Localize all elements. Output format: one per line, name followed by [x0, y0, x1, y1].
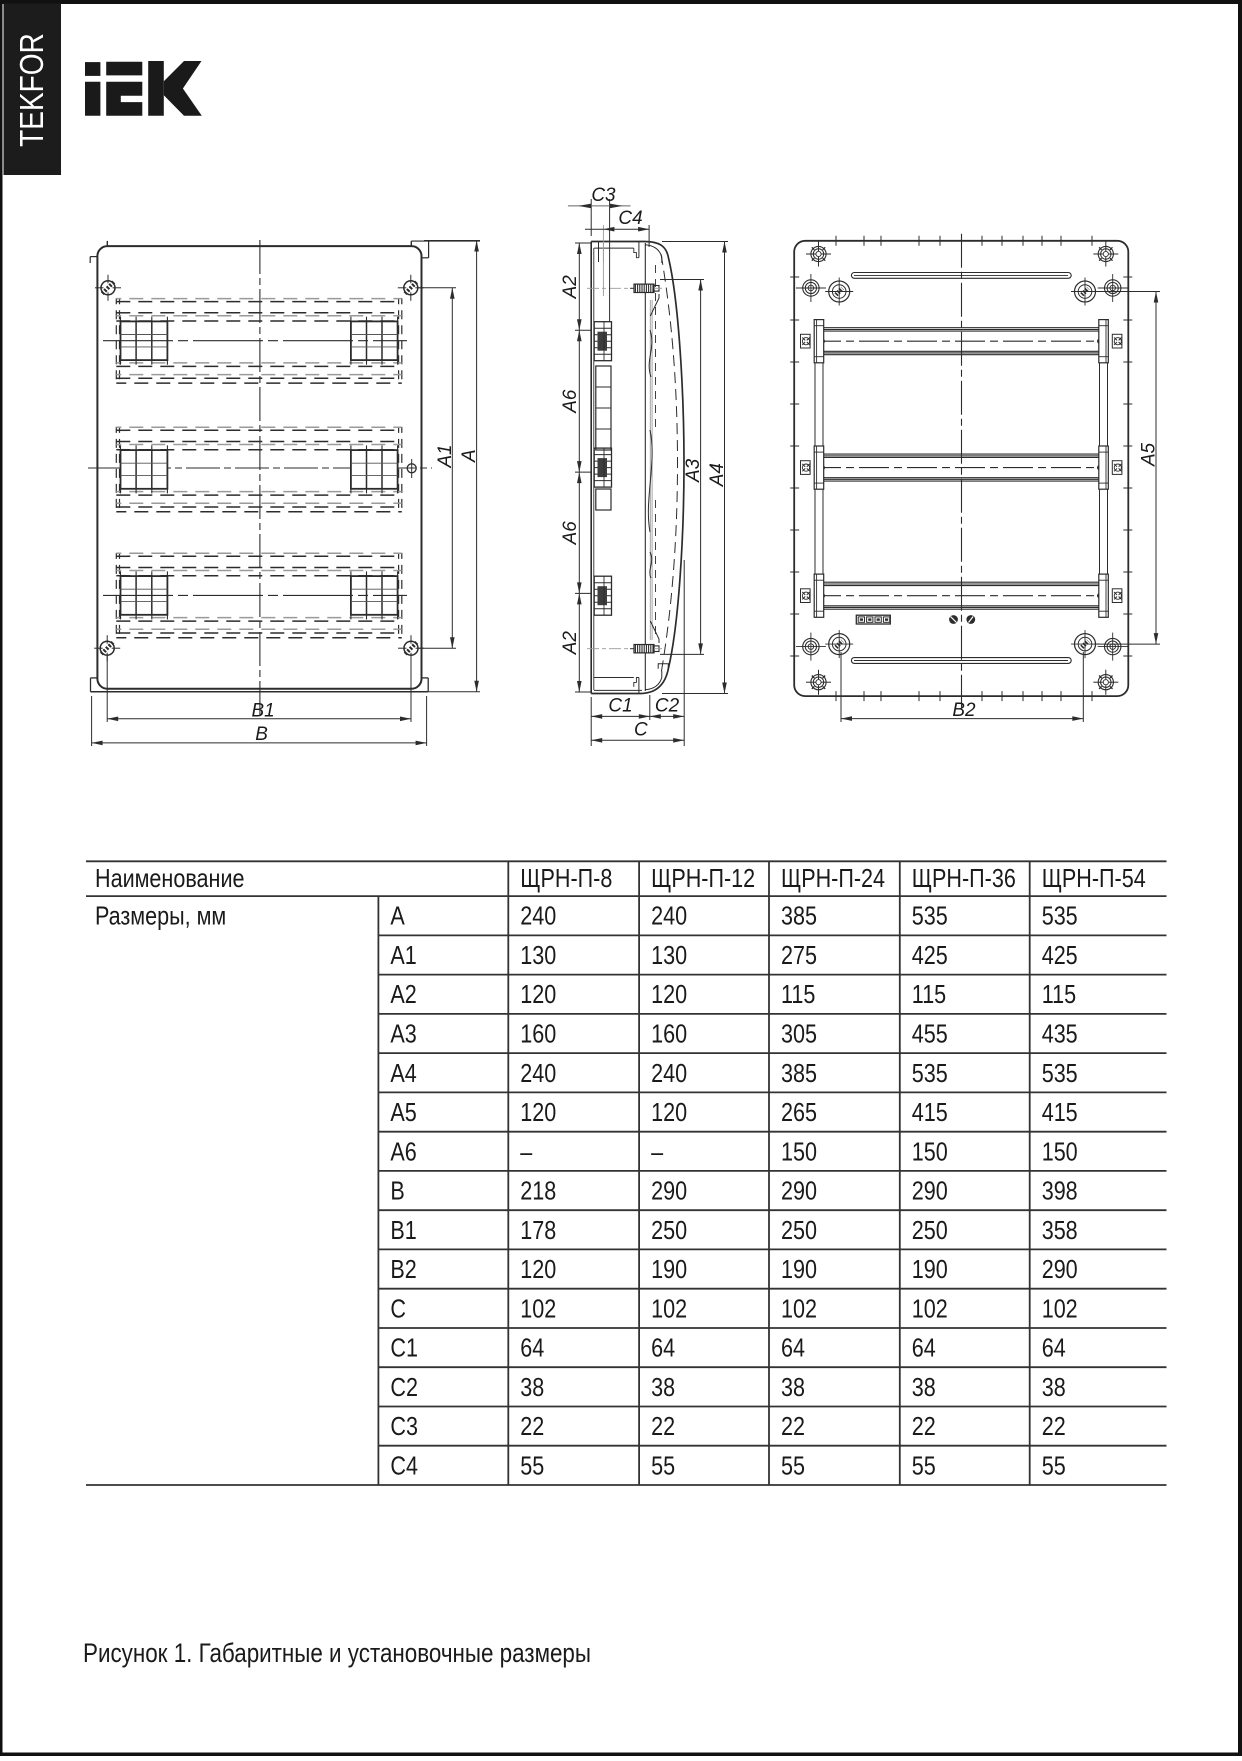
svg-text:ЩРН-П-12: ЩРН-П-12 — [651, 864, 755, 893]
svg-text:64: 64 — [781, 1334, 805, 1363]
svg-text:150: 150 — [912, 1137, 948, 1166]
svg-text:C3: C3 — [591, 185, 615, 206]
svg-text:A2: A2 — [560, 631, 581, 655]
svg-text:55: 55 — [912, 1452, 936, 1481]
svg-text:64: 64 — [912, 1334, 936, 1363]
svg-text:130: 130 — [651, 941, 687, 970]
svg-text:ЩРН-П-8: ЩРН-П-8 — [520, 864, 612, 893]
svg-text:218: 218 — [520, 1177, 556, 1206]
svg-text:B: B — [390, 1177, 404, 1206]
svg-text:250: 250 — [781, 1216, 817, 1245]
svg-text:290: 290 — [651, 1177, 687, 1206]
svg-text:–: – — [520, 1137, 533, 1166]
svg-text:535: 535 — [912, 1059, 948, 1088]
svg-text:22: 22 — [651, 1412, 675, 1441]
svg-text:535: 535 — [1042, 1059, 1078, 1088]
svg-text:22: 22 — [781, 1412, 805, 1441]
svg-text:265: 265 — [781, 1098, 817, 1127]
svg-text:A4: A4 — [707, 463, 728, 487]
svg-text:C1: C1 — [390, 1334, 418, 1363]
svg-text:290: 290 — [912, 1177, 948, 1206]
svg-text:102: 102 — [1042, 1294, 1078, 1323]
svg-text:Рисунок 1. Габаритные и устано: Рисунок 1. Габаритные и установочные раз… — [83, 1639, 591, 1668]
svg-text:385: 385 — [781, 902, 817, 931]
svg-text:C2: C2 — [655, 695, 679, 716]
svg-text:C4: C4 — [618, 208, 642, 229]
svg-text:C: C — [390, 1294, 406, 1323]
svg-text:120: 120 — [520, 1098, 556, 1127]
svg-text:102: 102 — [651, 1294, 687, 1323]
svg-text:A6: A6 — [560, 389, 581, 413]
svg-text:C3: C3 — [390, 1412, 418, 1441]
svg-text:B2: B2 — [390, 1255, 416, 1284]
svg-text:64: 64 — [1042, 1334, 1066, 1363]
svg-text:275: 275 — [781, 941, 817, 970]
svg-text:C4: C4 — [390, 1452, 418, 1481]
svg-text:38: 38 — [520, 1373, 544, 1402]
svg-text:130: 130 — [520, 941, 556, 970]
svg-text:385: 385 — [781, 1059, 817, 1088]
svg-text:435: 435 — [1042, 1020, 1078, 1049]
svg-text:190: 190 — [781, 1255, 817, 1284]
svg-text:120: 120 — [651, 980, 687, 1009]
svg-text:190: 190 — [651, 1255, 687, 1284]
svg-text:C1: C1 — [608, 695, 632, 716]
svg-text:Размеры, мм: Размеры, мм — [95, 902, 226, 931]
svg-text:Наименование: Наименование — [95, 864, 244, 893]
svg-text:B1: B1 — [390, 1216, 416, 1245]
svg-text:A5: A5 — [390, 1098, 416, 1127]
svg-text:38: 38 — [781, 1373, 805, 1402]
svg-text:425: 425 — [1042, 941, 1078, 970]
svg-text:250: 250 — [912, 1216, 948, 1245]
svg-text:64: 64 — [651, 1334, 675, 1363]
svg-text:A: A — [459, 449, 480, 463]
svg-text:55: 55 — [651, 1452, 675, 1481]
svg-text:120: 120 — [520, 980, 556, 1009]
svg-text:B: B — [255, 724, 268, 745]
svg-text:TEKFOR: TEKFOR — [14, 33, 51, 147]
svg-text:455: 455 — [912, 1020, 948, 1049]
svg-text:240: 240 — [651, 902, 687, 931]
svg-text:150: 150 — [1042, 1137, 1078, 1166]
svg-text:A4: A4 — [390, 1059, 416, 1088]
svg-text:38: 38 — [651, 1373, 675, 1402]
svg-text:A5: A5 — [1138, 443, 1159, 467]
svg-text:290: 290 — [1042, 1255, 1078, 1284]
svg-text:B2: B2 — [952, 700, 975, 721]
svg-text:290: 290 — [781, 1177, 817, 1206]
svg-text:A2: A2 — [390, 980, 416, 1009]
svg-text:240: 240 — [520, 902, 556, 931]
svg-text:102: 102 — [912, 1294, 948, 1323]
svg-text:415: 415 — [1042, 1098, 1078, 1127]
svg-text:55: 55 — [1042, 1452, 1066, 1481]
svg-text:–: – — [651, 1137, 664, 1166]
svg-text:A6: A6 — [560, 521, 581, 545]
svg-text:120: 120 — [651, 1098, 687, 1127]
svg-text:398: 398 — [1042, 1177, 1078, 1206]
svg-text:115: 115 — [1042, 980, 1076, 1009]
svg-text:120: 120 — [520, 1255, 556, 1284]
svg-text:102: 102 — [781, 1294, 817, 1323]
svg-text:240: 240 — [520, 1059, 556, 1088]
svg-text:A1: A1 — [390, 941, 416, 970]
svg-text:115: 115 — [781, 980, 815, 1009]
svg-text:64: 64 — [520, 1334, 544, 1363]
svg-text:425: 425 — [912, 941, 948, 970]
svg-text:A1: A1 — [435, 444, 456, 468]
svg-text:178: 178 — [520, 1216, 556, 1245]
svg-text:A2: A2 — [560, 275, 581, 299]
svg-text:ЩРН-П-36: ЩРН-П-36 — [912, 864, 1016, 893]
svg-text:240: 240 — [651, 1059, 687, 1088]
svg-text:38: 38 — [1042, 1373, 1066, 1402]
svg-text:415: 415 — [912, 1098, 948, 1127]
svg-text:B1: B1 — [252, 700, 275, 721]
svg-text:535: 535 — [912, 902, 948, 931]
svg-text:55: 55 — [520, 1452, 544, 1481]
svg-text:ЩРН-П-24: ЩРН-П-24 — [781, 864, 885, 893]
svg-text:55: 55 — [781, 1452, 805, 1481]
svg-text:A3: A3 — [683, 459, 704, 483]
svg-text:C2: C2 — [390, 1373, 418, 1402]
svg-text:160: 160 — [651, 1020, 687, 1049]
svg-text:A: A — [390, 902, 404, 931]
svg-text:C: C — [634, 719, 648, 740]
svg-text:A3: A3 — [390, 1020, 416, 1049]
svg-text:190: 190 — [912, 1255, 948, 1284]
svg-text:535: 535 — [1042, 902, 1078, 931]
svg-text:A6: A6 — [390, 1137, 416, 1166]
svg-text:150: 150 — [781, 1137, 817, 1166]
svg-text:38: 38 — [912, 1373, 936, 1402]
svg-text:22: 22 — [912, 1412, 936, 1441]
svg-text:250: 250 — [651, 1216, 687, 1245]
svg-text:305: 305 — [781, 1020, 817, 1049]
svg-text:115: 115 — [912, 980, 946, 1009]
svg-text:22: 22 — [520, 1412, 544, 1441]
svg-text:160: 160 — [520, 1020, 556, 1049]
svg-text:358: 358 — [1042, 1216, 1078, 1245]
svg-text:ЩРН-П-54: ЩРН-П-54 — [1042, 864, 1146, 893]
svg-text:102: 102 — [520, 1294, 556, 1323]
svg-text:22: 22 — [1042, 1412, 1066, 1441]
